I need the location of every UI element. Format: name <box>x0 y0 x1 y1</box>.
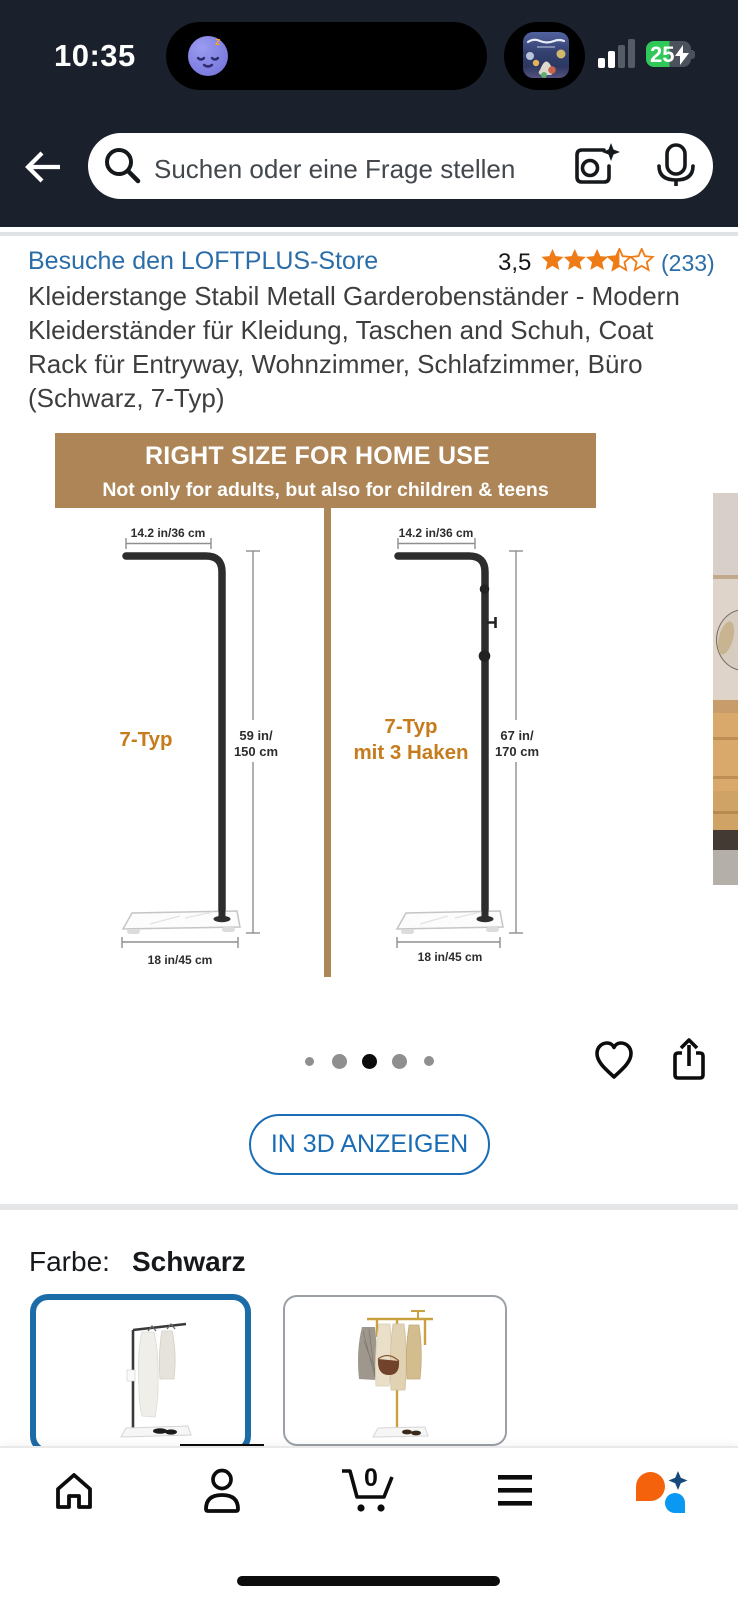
svg-text:z: z <box>215 36 221 48</box>
svg-text:7-Typ: 7-Typ <box>119 728 172 751</box>
svg-text:7-Typ: 7-Typ <box>384 715 437 738</box>
svg-text:67 in/: 67 in/ <box>500 728 534 743</box>
svg-text:150 cm: 150 cm <box>234 744 278 759</box>
svg-text:mit 3 Haken: mit 3 Haken <box>353 741 468 764</box>
svg-text:14.2 in/36 cm: 14.2 in/36 cm <box>131 526 206 540</box>
svg-text:14.2 in/36 cm: 14.2 in/36 cm <box>399 526 474 540</box>
svg-text:18 in/45 cm: 18 in/45 cm <box>418 950 483 964</box>
svg-text:0: 0 <box>364 1465 378 1492</box>
svg-text:59 in/: 59 in/ <box>239 728 273 743</box>
svg-text:170 cm: 170 cm <box>495 744 539 759</box>
svg-text:18 in/45 cm: 18 in/45 cm <box>148 953 213 967</box>
